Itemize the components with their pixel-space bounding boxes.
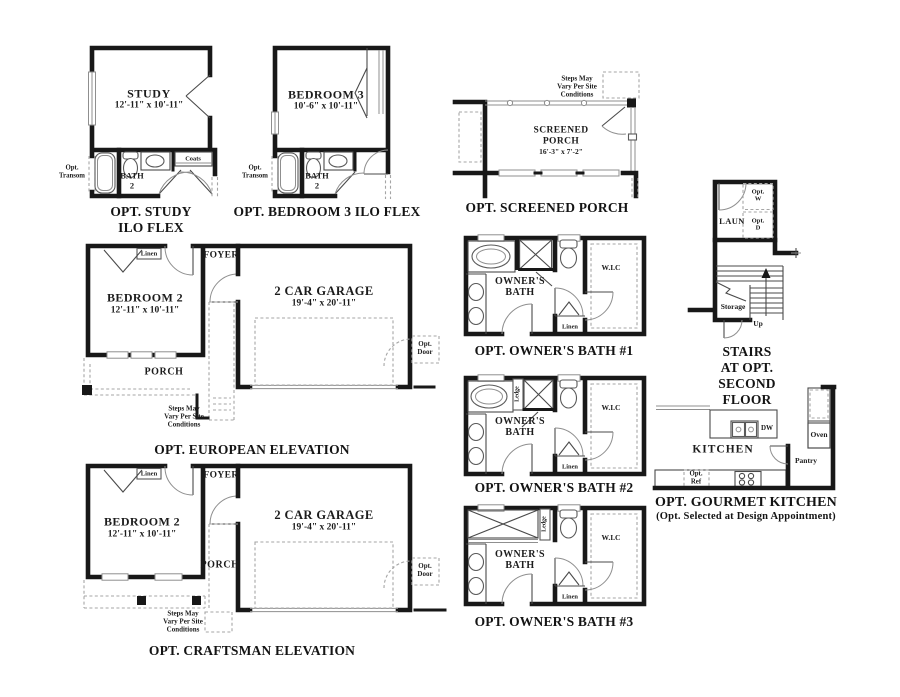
opt-dryer-label: Opt. D <box>752 218 765 233</box>
foyer-door <box>210 496 238 524</box>
lower-counter <box>655 470 786 488</box>
coats-label: Coats <box>185 155 201 162</box>
bedroom2-dims-label: 12'-11" x 10'-11" <box>111 305 180 316</box>
bedroom3-room-label: BEDROOM 3 <box>288 88 364 101</box>
laundry-label: LAUN <box>719 217 745 227</box>
opt-washer-label: Opt. W <box>752 189 765 204</box>
bathtub-icon <box>468 241 515 272</box>
bathtub-icon <box>468 381 513 412</box>
wic-label: W.I.C <box>602 264 621 272</box>
european-plan-drawing <box>68 236 448 462</box>
porch-outline <box>82 302 238 420</box>
garage-walls <box>238 466 445 612</box>
toilet-icon <box>560 380 577 408</box>
bath2-label: BATH 2 <box>120 171 143 190</box>
opt-transom-label: Opt. Transom <box>59 164 85 179</box>
panel-opt-stairs: LAUN Opt. W Opt. D Storage Up STAIRS AT … <box>688 170 815 382</box>
steps-note-label: Steps May Vary Per Site Conditions <box>557 75 597 98</box>
bedroom2-label: BEDROOM 2 <box>104 515 180 528</box>
study-dims-label: 12'-11" x 10'-11" <box>115 101 184 112</box>
house-walls <box>455 102 485 196</box>
bedroom2-dims-label: 12'-11" x 10'-11" <box>108 529 177 540</box>
owners-bath-label: OWNER'S BATH <box>495 416 545 438</box>
opt-door-label: Opt. Door <box>417 563 432 579</box>
panel-opt-craftsman: Linen FOYER BEDROOM 2 12'-11" x 10'-11" … <box>68 456 448 664</box>
linen-label: Linen <box>141 250 158 257</box>
vanity-sinks <box>466 274 486 334</box>
large-shower-icon <box>468 509 550 543</box>
garage-walls <box>238 246 434 389</box>
panel-owners-bath-1: OWNER'S BATH W.I.C Linen OPT. OWNER'S BA… <box>458 228 650 368</box>
pantry-label: Pantry <box>795 457 817 465</box>
storage-label: Storage <box>721 303 746 311</box>
panel-opt-screened-porch: SCREENED PORCH 16'-3" x 7'-2" Steps May … <box>455 66 655 218</box>
steps-area <box>603 72 639 98</box>
stairs-structure <box>690 240 801 338</box>
linen-label: Linen <box>562 323 578 330</box>
bath2-caption: OPT. OWNER'S BATH #2 <box>475 480 634 496</box>
dishwasher-label: DW <box>761 425 773 433</box>
study-plan-drawing <box>55 36 240 232</box>
kitchen-subcaption: (Opt. Selected at Design Appointment) <box>656 511 836 523</box>
porch-bottom-wall <box>485 170 638 198</box>
toilet-icon <box>560 240 577 268</box>
garage-dims-label: 19'-4" x 20'-11" <box>292 298 356 309</box>
porch-post <box>192 596 201 605</box>
garage-label: 2 CAR GARAGE <box>274 508 373 522</box>
panel-opt-european: Linen FOYER BEDROOM 2 12'-11" x 10'-11" … <box>68 236 448 462</box>
laundry-room <box>715 182 775 240</box>
linen-label: Linen <box>562 593 578 600</box>
porch-dims-label: 16'-3" x 7'-2" <box>539 148 583 156</box>
wic-label: W.I.C <box>602 534 621 542</box>
bedroom3-plan-drawing <box>240 36 415 232</box>
kitchen-island <box>656 406 777 438</box>
foyer-label: FOYER <box>203 471 238 482</box>
study-caption: OPT. STUDY ILO FLEX <box>107 204 196 236</box>
pantry-door <box>770 446 788 464</box>
ledge-label: Ledge <box>515 386 522 402</box>
entry-doors <box>159 170 212 194</box>
opt-ref-label: Opt. Ref <box>689 470 702 485</box>
opt-door-label: Opt. Door <box>417 341 432 357</box>
wic-label: W.I.C <box>602 404 621 412</box>
foyer-door <box>210 274 238 302</box>
break-line <box>716 282 746 301</box>
kitchen-caption: OPT. GOURMET KITCHEN <box>655 495 837 512</box>
porch-post <box>137 596 146 605</box>
steps-note-label: Steps May Vary Per Site Conditions <box>164 405 204 428</box>
kitchen-label: KITCHEN <box>692 444 753 457</box>
owners-bath-label: OWNER'S BATH <box>495 549 545 571</box>
walk-in-closet <box>585 244 637 328</box>
cooktop-icon <box>735 472 761 487</box>
screen-door <box>602 107 626 134</box>
linen-label: Linen <box>141 470 158 477</box>
oven-label: Oven <box>810 431 827 439</box>
screened-porch-caption: OPT. SCREENED PORCH <box>466 200 629 216</box>
garage-label: 2 CAR GARAGE <box>274 284 373 298</box>
walk-in-closet <box>585 514 637 598</box>
porch-room-label: SCREENED PORCH <box>534 125 589 146</box>
craftsman-plan-drawing <box>68 456 448 664</box>
foyer-label: FOYER <box>203 251 238 262</box>
panel-owners-bath-2: Ledge OWNER'S BATH W.I.C Linen OPT. OWNE… <box>458 368 650 500</box>
floor-plan-options-sheet: { "sheet": { "background": "#ffffff", "i… <box>0 0 900 697</box>
bedroom3-caption: OPT. BEDROOM 3 ILO FLEX <box>234 204 421 220</box>
linen-label: Linen <box>562 463 578 470</box>
owners-bath-label: OWNER'S BATH <box>495 276 545 298</box>
bedroom2-label: BEDROOM 2 <box>107 291 183 304</box>
opt-transom-label: Opt. Transom <box>242 164 268 179</box>
ledge-label: Ledge <box>542 516 549 532</box>
craftsman-caption: OPT. CRAFTSMAN ELEVATION <box>149 643 355 659</box>
bath2-label: BATH 2 <box>305 171 328 190</box>
panel-opt-bedroom3: BEDROOM 3 10'-6" x 10'-11" Opt. Transom … <box>240 36 415 232</box>
steps-note-label: Steps May Vary Per Site Conditions <box>163 610 203 633</box>
study-french-doors <box>186 75 210 118</box>
porch-label: PORCH <box>200 559 239 570</box>
porch-label: PORCH <box>144 366 183 377</box>
closet-doors <box>104 470 142 492</box>
up-label: Up <box>753 320 763 328</box>
bedroom3-dims-label: 10'-6" x 10'-11" <box>294 102 358 113</box>
panel-opt-gourmet-kitchen: DW KITCHEN Opt. Ref Pantry Oven OPT. GOU… <box>653 383 850 530</box>
bath1-caption: OPT. OWNER'S BATH #1 <box>475 343 634 359</box>
porch-post <box>82 385 92 395</box>
panel-owners-bath-3: Ledge OWNER'S BATH W.I.C Linen OPT. OWNE… <box>458 498 650 636</box>
bath3-caption: OPT. OWNER'S BATH #3 <box>475 614 634 630</box>
toilet-icon <box>560 510 577 538</box>
vanity-sinks <box>466 414 486 474</box>
walk-in-closet <box>585 384 637 468</box>
study-room-label: STUDY <box>127 87 171 100</box>
panel-opt-study: STUDY 12'-11" x 10'-11" Opt. Transom BAT… <box>55 36 240 232</box>
vanity-sinks <box>466 544 486 604</box>
closet-doors <box>104 250 142 272</box>
garage-dims-label: 19'-4" x 20'-11" <box>292 522 356 533</box>
bedroom3-closet <box>355 48 383 118</box>
